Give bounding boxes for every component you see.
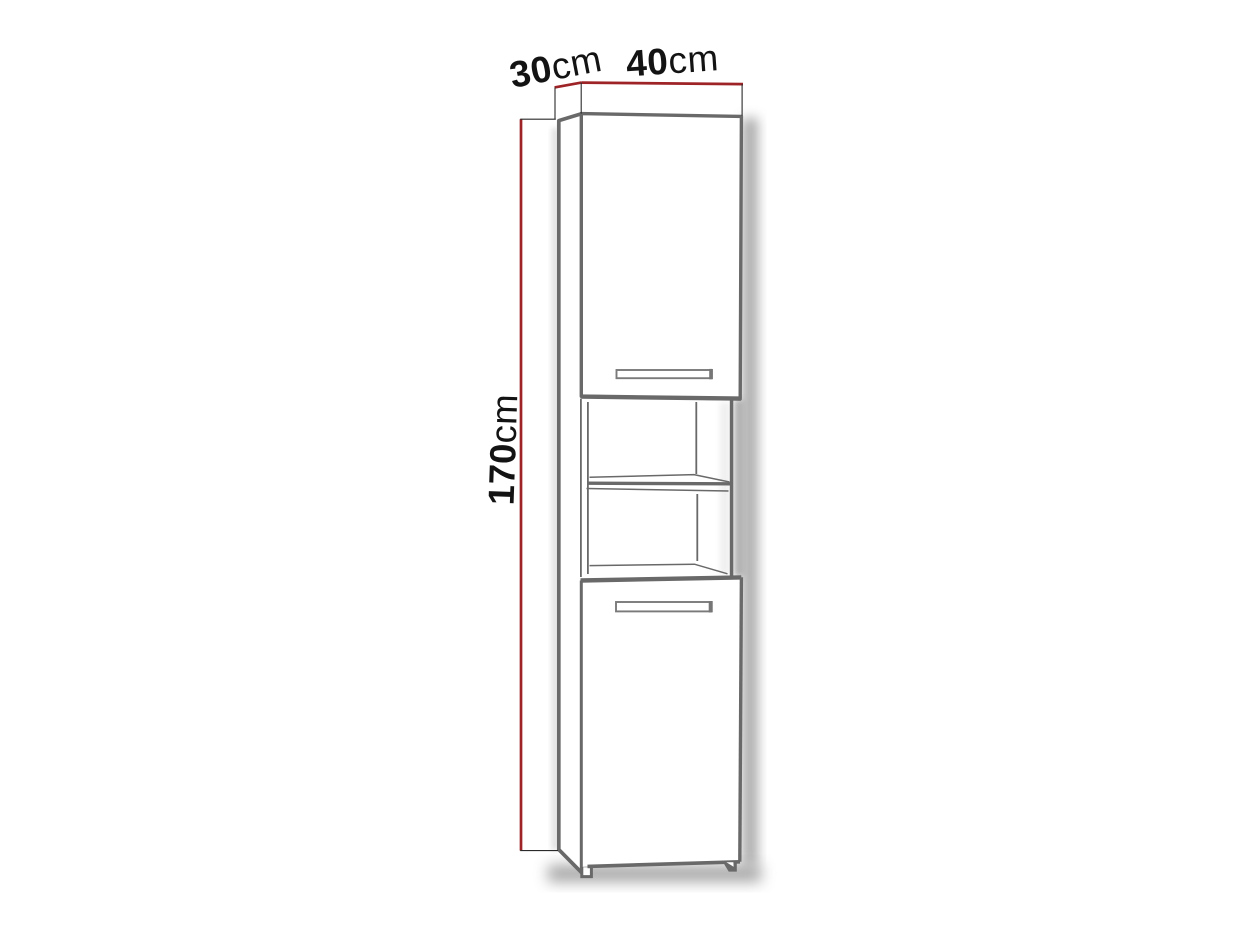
svg-text:40cm: 40cm xyxy=(625,37,721,84)
svg-text:170cm: 170cm xyxy=(481,393,526,505)
